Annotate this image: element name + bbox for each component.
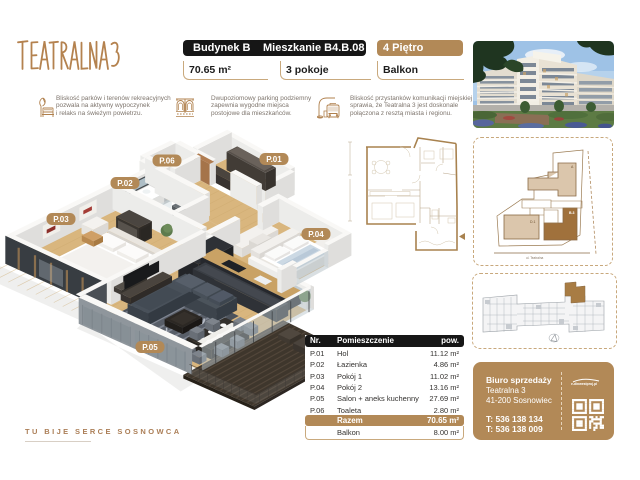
- svg-text:e-dinwestproj.pl: e-dinwestproj.pl: [571, 382, 597, 386]
- svg-text:ul. Teatralna: ul. Teatralna: [526, 256, 544, 260]
- svg-text:P.02: P.02: [117, 179, 133, 188]
- svg-text:B.3: B.3: [569, 211, 575, 215]
- svg-text:P.03: P.03: [53, 215, 69, 224]
- svg-text:P.01: P.01: [266, 155, 282, 164]
- svg-text:D.1: D.1: [530, 220, 536, 224]
- svg-text:P.04: P.04: [308, 230, 324, 239]
- svg-text:P.05: P.05: [142, 343, 158, 352]
- svg-text:P.06: P.06: [159, 156, 175, 165]
